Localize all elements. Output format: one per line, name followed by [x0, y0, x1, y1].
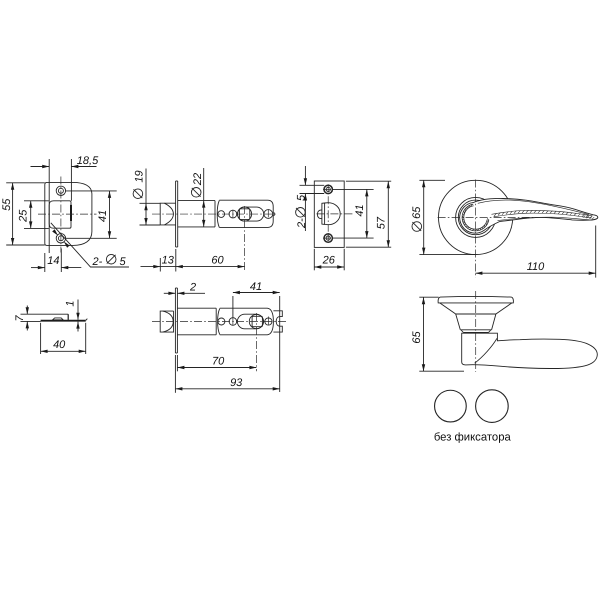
svg-text:65: 65 — [411, 331, 423, 344]
svg-text:18,5: 18,5 — [77, 155, 99, 167]
svg-text:2: 2 — [189, 281, 196, 293]
svg-text:1: 1 — [64, 300, 76, 306]
svg-text:93: 93 — [230, 377, 243, 389]
svg-text:13: 13 — [162, 255, 175, 267]
svg-text:7: 7 — [14, 314, 26, 321]
svg-text:65: 65 — [411, 206, 423, 219]
svg-text:57: 57 — [376, 216, 388, 229]
svg-text:5: 5 — [295, 194, 307, 201]
svg-text:19: 19 — [133, 170, 145, 182]
svg-text:5: 5 — [120, 256, 127, 268]
svg-text:41: 41 — [354, 204, 366, 216]
svg-text:14: 14 — [47, 255, 59, 267]
svg-text:22: 22 — [192, 173, 204, 186]
svg-text:2-: 2- — [296, 218, 308, 229]
svg-text:41: 41 — [97, 210, 109, 222]
svg-text:26: 26 — [322, 255, 336, 267]
svg-text:41: 41 — [250, 281, 262, 293]
svg-text:40: 40 — [53, 339, 66, 351]
svg-text:110: 110 — [527, 261, 545, 273]
svg-text:2-: 2- — [92, 256, 103, 268]
svg-text:60: 60 — [211, 255, 224, 267]
svg-text:55: 55 — [1, 198, 13, 211]
svg-text:без фиксатора: без фиксатора — [434, 432, 512, 444]
svg-text:25: 25 — [17, 209, 29, 223]
svg-text:70: 70 — [212, 356, 225, 368]
